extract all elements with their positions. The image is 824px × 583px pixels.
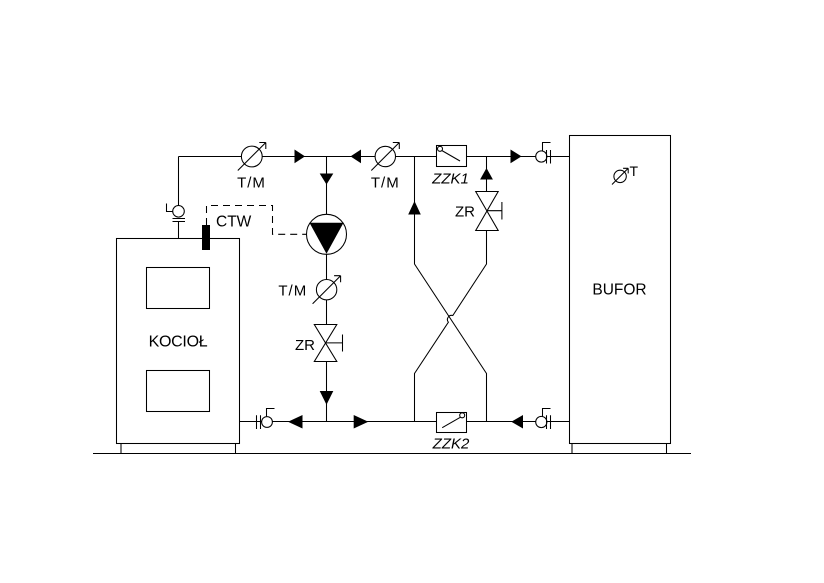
svg-text:ZZK2: ZZK2 — [432, 436, 470, 453]
svg-text:KOCIOŁ: KOCIOŁ — [149, 334, 208, 351]
svg-text:T/M: T/M — [237, 174, 266, 191]
svg-text:CTW: CTW — [216, 214, 252, 231]
svg-text:T/M: T/M — [371, 174, 400, 191]
svg-text:T: T — [630, 163, 639, 179]
svg-text:ZZK1: ZZK1 — [431, 171, 469, 188]
svg-text:BUFOR: BUFOR — [592, 282, 646, 299]
svg-text:ZR: ZR — [455, 204, 475, 221]
svg-text:T/M: T/M — [278, 282, 307, 299]
svg-text:ZR: ZR — [295, 337, 315, 354]
